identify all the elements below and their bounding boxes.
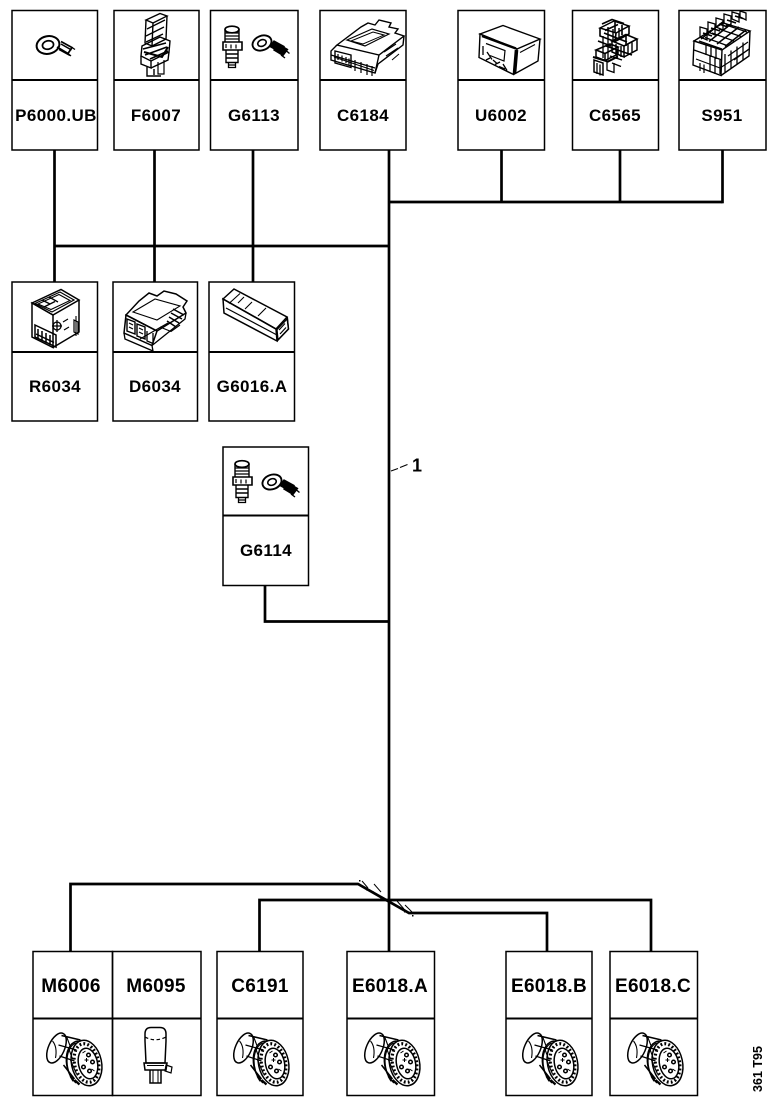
svg-text:M6095: M6095 — [126, 976, 186, 997]
svg-text:C6191: C6191 — [231, 976, 289, 997]
svg-text:G6114: G6114 — [240, 541, 292, 560]
svg-text:F6007: F6007 — [131, 106, 181, 125]
svg-text:1: 1 — [412, 456, 422, 476]
svg-text:M6006: M6006 — [41, 976, 101, 997]
svg-text:S951: S951 — [701, 106, 742, 125]
svg-text:C6565: C6565 — [589, 106, 641, 125]
svg-text:E6018.C: E6018.C — [615, 976, 691, 997]
svg-text:U6002: U6002 — [475, 106, 527, 125]
svg-text:E6018.B: E6018.B — [511, 976, 587, 997]
svg-text:E6018.A: E6018.A — [352, 976, 428, 997]
svg-text:R6034: R6034 — [29, 377, 81, 396]
svg-text:D6034: D6034 — [129, 377, 181, 396]
svg-text:C6184: C6184 — [337, 106, 389, 125]
svg-text:P6000.UB: P6000.UB — [15, 106, 97, 125]
svg-text:361 T95: 361 T95 — [751, 1046, 765, 1092]
svg-text:G6113: G6113 — [228, 106, 280, 125]
svg-text:G6016.A: G6016.A — [217, 377, 288, 396]
